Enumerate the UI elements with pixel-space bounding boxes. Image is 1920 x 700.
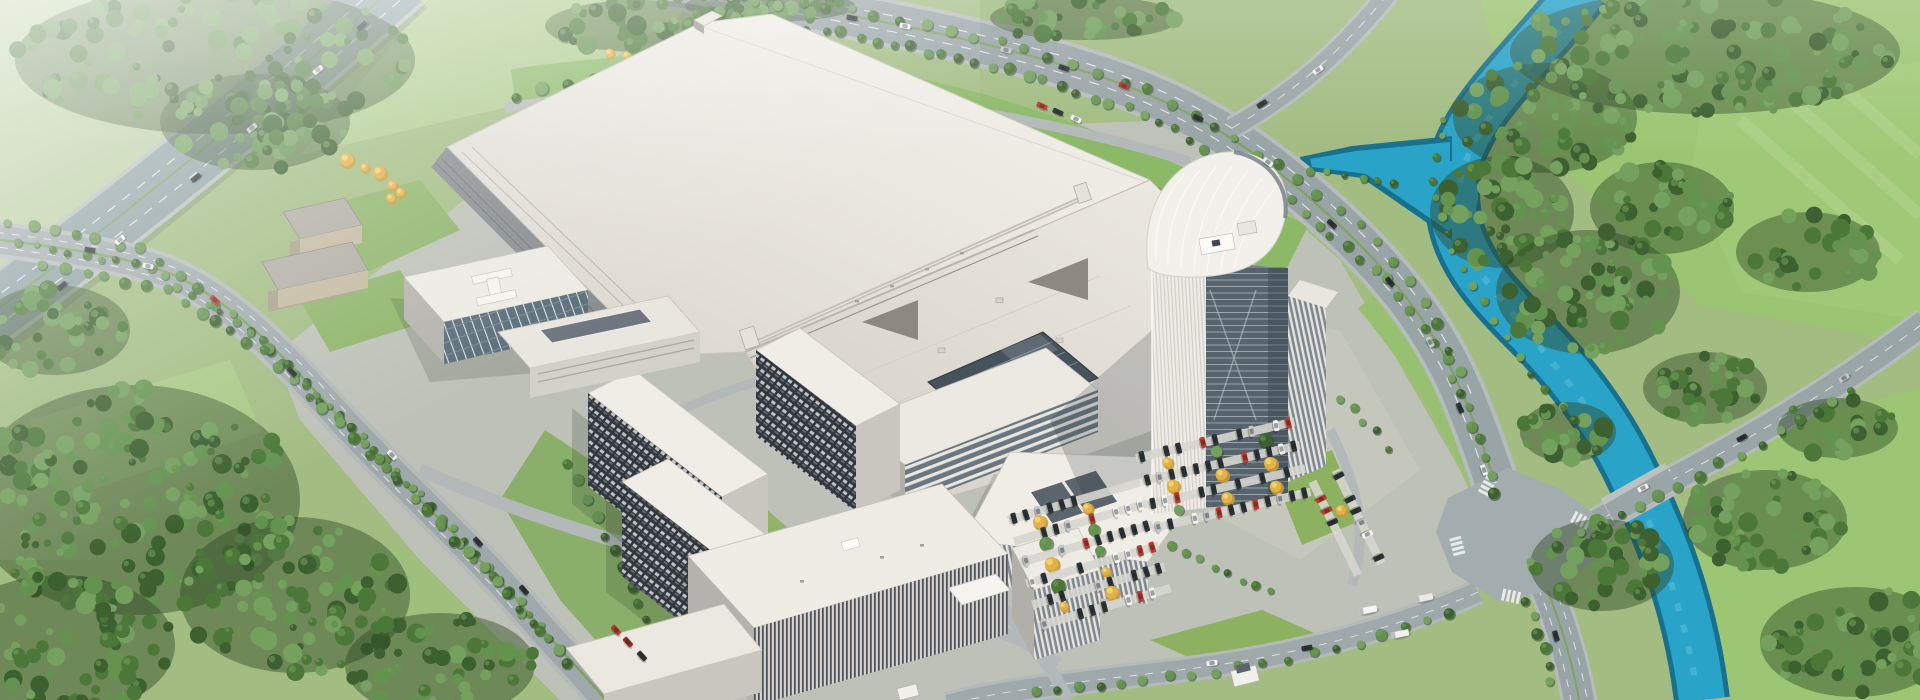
forest-tree [302, 654, 312, 664]
forest-tree [36, 640, 48, 652]
forest-tree [142, 614, 157, 629]
tree-highlight [1268, 588, 1271, 591]
tree-highlight [1288, 196, 1292, 200]
forest-tree [1832, 669, 1844, 681]
forest-tree [1878, 435, 1886, 443]
forest-tree [1604, 430, 1612, 438]
tree-highlight [1225, 570, 1228, 573]
tree-highlight [494, 578, 498, 582]
forest-tree-highlight [1632, 522, 1638, 528]
tree-highlight [1491, 318, 1494, 321]
tree [1490, 317, 1498, 325]
forest-tree [195, 566, 203, 574]
tree-highlight [563, 660, 567, 664]
forest-tree [1492, 185, 1500, 193]
forest-tree-highlight [509, 676, 514, 681]
forest-tree-highlight [269, 656, 275, 662]
forest-tree [425, 624, 435, 634]
forest-tree [435, 673, 445, 683]
tree-highlight [1542, 386, 1546, 390]
forest-tree [1567, 342, 1578, 353]
forest-tree [1853, 248, 1869, 264]
tree [1713, 457, 1723, 467]
tree-highlight [1391, 180, 1394, 183]
forest-tree-highlight [1444, 206, 1448, 210]
tree-highlight [1522, 598, 1526, 602]
car-roof [1209, 661, 1215, 666]
forest-tree [319, 582, 333, 596]
forest-tree [1709, 372, 1722, 385]
forest-tree-highlight [1600, 343, 1605, 348]
tree [480, 562, 490, 572]
forest-tree [1791, 676, 1800, 685]
tree-highlight [1053, 580, 1059, 586]
forest-tree [1760, 635, 1777, 652]
tree [1273, 158, 1283, 168]
yellow-tree-highlight [1337, 506, 1342, 511]
forest-tree [1873, 421, 1887, 435]
tree-highlight [1377, 630, 1382, 635]
forest-tree [1792, 282, 1801, 291]
forest-tree [147, 644, 159, 656]
tree-highlight [1075, 683, 1079, 687]
tree-highlight [1168, 542, 1172, 546]
forest-tree [1688, 493, 1707, 512]
forest-tree [1598, 223, 1616, 241]
tree-highlight [1358, 221, 1361, 224]
forest-tree-highlight [5, 650, 10, 655]
forest-tree [1615, 212, 1625, 222]
tree-highlight [1541, 643, 1546, 648]
tree [1355, 255, 1364, 264]
forest-tree [1591, 561, 1600, 570]
forest-tree [1588, 539, 1608, 559]
tree [1847, 387, 1854, 394]
tree [1448, 375, 1456, 383]
tree-highlight [1041, 538, 1047, 544]
forest-tree [1633, 587, 1646, 600]
forest-tree [1577, 440, 1592, 455]
forest-tree [1502, 283, 1519, 300]
forest-tree [1823, 489, 1832, 498]
tree-highlight [1337, 396, 1340, 399]
forest-tree [1709, 362, 1719, 372]
forest-tree [1902, 591, 1920, 609]
tree-highlight [1578, 529, 1581, 532]
tree-highlight [1814, 408, 1818, 412]
tree [1393, 292, 1402, 301]
forest-tree-highlight [226, 628, 229, 631]
tree-highlight [1571, 417, 1575, 421]
forest-tree [1678, 181, 1685, 188]
forest-tree [484, 660, 495, 671]
forest-tree [1654, 192, 1670, 208]
forest-tree [1609, 546, 1623, 560]
forest-tree [1597, 566, 1616, 585]
tree-highlight [1489, 472, 1493, 476]
forest-tree [358, 587, 377, 606]
forest-tree [1587, 589, 1597, 599]
forest-tree [1656, 287, 1668, 299]
tree [1444, 608, 1455, 619]
forest-tree [315, 658, 323, 666]
forest-tree-highlight [1543, 441, 1549, 447]
tree-highlight [1433, 195, 1436, 198]
tree [1182, 549, 1191, 558]
forest-tree [1784, 635, 1804, 655]
forest-tree [48, 572, 67, 591]
forest-tree [1740, 551, 1749, 560]
forest-tree [96, 602, 112, 618]
forest-tree [1588, 600, 1600, 612]
forest-tree [11, 568, 20, 577]
forest-tree [1523, 439, 1531, 447]
forest-tree [1644, 220, 1661, 237]
forest-tree-highlight [291, 625, 294, 628]
forest-tree [1847, 231, 1866, 250]
tree [1421, 324, 1430, 333]
forest-tree [1641, 296, 1650, 305]
forest-tree [1875, 409, 1888, 422]
forest-tree [1650, 319, 1666, 335]
tree-highlight [1374, 238, 1377, 241]
tree-highlight [1760, 442, 1763, 445]
tree-highlight [1358, 641, 1361, 644]
forest-tree [1672, 168, 1684, 180]
tree-highlight [1482, 454, 1485, 457]
tree [1336, 206, 1345, 215]
tree [1306, 167, 1314, 175]
tree [1343, 241, 1354, 252]
tree-highlight [1374, 427, 1377, 430]
tree [1445, 230, 1451, 236]
tree-highlight [1252, 582, 1256, 586]
forest-tree [480, 640, 488, 648]
forest-tree-highlight [1738, 386, 1742, 390]
forest-tree [1832, 240, 1843, 251]
forest-tree [1587, 344, 1595, 352]
forest-tree [1874, 630, 1892, 648]
tree [1469, 282, 1477, 290]
tree-highlight [1139, 677, 1143, 681]
forest-tree [415, 628, 426, 639]
tree [544, 634, 552, 642]
forest-tree [1871, 250, 1882, 261]
tree [1357, 640, 1365, 648]
forest-tree-highlight [1487, 228, 1491, 232]
forest-tree [1625, 303, 1633, 311]
forest-tree [303, 632, 316, 645]
tree [1097, 682, 1106, 691]
forest-tree [1859, 263, 1877, 281]
forest-tree [380, 607, 390, 617]
forest-tree [75, 595, 94, 614]
tree-highlight [1212, 670, 1216, 674]
tree [1618, 511, 1626, 519]
forest-tree-highlight [437, 675, 441, 679]
tree-highlight [1324, 169, 1327, 172]
forest-tree-highlight [1723, 413, 1728, 418]
forest-tree [1723, 198, 1733, 208]
forest-tree-highlight [1475, 212, 1480, 217]
forest-tree [1769, 253, 1777, 261]
forest-tree [1533, 268, 1543, 277]
forest-tree [1869, 592, 1889, 612]
forest-tree-highlight [123, 561, 128, 566]
forest-tree [1763, 272, 1774, 283]
forest-tree [1557, 285, 1573, 301]
forest-tree [1623, 196, 1631, 204]
forest-tree-highlight [1768, 503, 1774, 509]
forest-tree-highlight [117, 625, 123, 631]
forest-tree-highlight [1849, 619, 1856, 626]
forest-tree [1810, 653, 1828, 671]
forest-tree-highlight [1455, 240, 1461, 246]
tree-highlight [1481, 298, 1485, 302]
forest-tree [1596, 266, 1604, 274]
forest-tree [1576, 317, 1588, 329]
forest-tree-highlight [1593, 447, 1597, 451]
forest-tree [163, 622, 173, 632]
forest-tree [47, 647, 65, 665]
forest-tree [1682, 392, 1695, 405]
forest-tree [1582, 233, 1599, 250]
tree-highlight [1312, 191, 1316, 195]
forest-tree [1804, 443, 1822, 461]
forest-tree [1586, 292, 1594, 300]
forest-tree [1836, 607, 1845, 616]
forest-tree [286, 586, 297, 597]
tree [1031, 687, 1041, 697]
forest-tree [462, 657, 476, 671]
tree [1545, 677, 1554, 686]
forest-tree [1529, 211, 1537, 219]
forest-tree [1678, 206, 1697, 225]
forest-tree [1496, 232, 1504, 240]
tree [1373, 426, 1381, 434]
tree-highlight [1389, 258, 1393, 262]
forest-tree [1802, 546, 1812, 556]
tree [1577, 528, 1585, 536]
forest-tree [235, 580, 252, 597]
forest-tree-highlight [1781, 258, 1788, 265]
tree-highlight [1394, 293, 1398, 297]
yellow-tree-highlight [1035, 517, 1041, 523]
tree [1465, 403, 1473, 411]
forest-tree [1770, 479, 1781, 490]
forest-tree-highlight [338, 661, 341, 664]
tree-highlight [1848, 388, 1851, 391]
forest-tree-highlight [1673, 170, 1678, 175]
forest-tree [1725, 371, 1733, 379]
forest-tree [1550, 193, 1559, 202]
tree-highlight [1241, 579, 1244, 582]
tree-highlight [1386, 447, 1389, 450]
forest-tree [497, 641, 517, 661]
forest-tree [1526, 558, 1534, 566]
tree [1445, 347, 1453, 355]
forest-tree-highlight [1656, 161, 1661, 166]
forest-tree [331, 621, 338, 628]
forest-tree [1781, 208, 1796, 223]
forest-tree [360, 680, 372, 692]
forest-tree [1750, 393, 1760, 403]
forest-tree [1738, 358, 1754, 374]
tree-highlight [1445, 231, 1448, 234]
tree [1405, 276, 1415, 286]
forest-tree [177, 595, 194, 612]
forest-tree-highlight [1479, 181, 1485, 187]
tree-highlight [1598, 522, 1601, 525]
tree-highlight [1307, 168, 1311, 172]
yellow-tree-highlight [1266, 458, 1272, 464]
tree [1332, 645, 1340, 653]
tree-highlight [1254, 152, 1258, 156]
tree [1095, 546, 1105, 556]
forest-tree [1485, 226, 1495, 236]
forest-tree [1766, 501, 1782, 517]
forest-tree-highlight [1555, 584, 1563, 592]
tree-highlight [1213, 565, 1216, 568]
forest-tree [356, 670, 369, 683]
tree-highlight [1166, 671, 1170, 675]
tree [1385, 446, 1392, 453]
tree [1325, 232, 1332, 239]
forest-tree [122, 559, 136, 573]
yellow-tree-highlight [1107, 587, 1113, 593]
tree [1777, 426, 1786, 435]
tree-highlight [1344, 242, 1349, 247]
forest-tree [1887, 653, 1896, 662]
tree-highlight [1532, 613, 1535, 616]
forest-tree [1796, 628, 1804, 636]
forest-tree [1792, 532, 1800, 540]
tree-highlight [1796, 415, 1801, 420]
tree [1481, 453, 1489, 461]
forest-tree-highlight [1591, 533, 1595, 537]
forest-tree [1802, 481, 1814, 493]
tree-highlight [1337, 207, 1341, 211]
forest-tree [1630, 520, 1644, 534]
tree [1292, 174, 1302, 184]
forest-tree [1877, 659, 1887, 669]
forest-tree-highlight [288, 602, 292, 606]
tree-highlight [1188, 672, 1192, 676]
tree [1475, 434, 1485, 444]
tree [1504, 334, 1510, 340]
forest-tree [32, 572, 43, 583]
forest-tree [526, 660, 537, 671]
tree [1521, 597, 1530, 606]
tree [1531, 612, 1539, 620]
tree [1429, 177, 1437, 185]
forest-tree-highlight [217, 584, 222, 589]
tree-highlight [1326, 233, 1329, 236]
forest-tree-highlight [1635, 589, 1640, 594]
tree-highlight [1361, 176, 1364, 179]
forest-tree-highlight [1597, 298, 1604, 305]
forest-tree-highlight [1584, 235, 1591, 242]
forest-tree [1699, 351, 1710, 362]
tree-highlight [1175, 506, 1179, 510]
tree [1456, 389, 1465, 398]
tree-highlight [1778, 427, 1782, 431]
forest-tree [91, 685, 100, 694]
forest-tree [84, 576, 103, 595]
forest-tree [480, 670, 491, 681]
forest-tree [1809, 267, 1821, 279]
tree [1251, 581, 1260, 590]
forest-tree [1552, 528, 1563, 539]
forest-tree [1894, 659, 1911, 676]
forest-tree-highlight [1846, 270, 1850, 274]
tree [1652, 490, 1664, 502]
tree-highlight [1285, 658, 1288, 661]
tree [1635, 501, 1645, 511]
forest-tree-highlight [1507, 237, 1511, 241]
tree-highlight [1619, 512, 1622, 515]
forest-tree-highlight [1788, 472, 1792, 476]
forest-tree [1608, 295, 1626, 313]
forest-tree [1712, 552, 1726, 566]
forest-tree [1716, 539, 1731, 554]
tree [1336, 395, 1344, 403]
forest-tree [373, 667, 391, 685]
forest-tree [158, 657, 170, 669]
tree [1456, 366, 1466, 376]
forest-tree-highlight [1875, 423, 1881, 429]
forest-tree-highlight [424, 649, 431, 656]
tree [1360, 175, 1368, 183]
forest-tree [337, 660, 345, 668]
forest-tree [1803, 512, 1814, 523]
forest-tree-highlight [117, 588, 124, 595]
forest-tree-highlight [1693, 487, 1700, 494]
forest-tree-highlight [1742, 470, 1746, 474]
forest-tree-highlight [1568, 429, 1574, 435]
tree [1737, 452, 1745, 460]
tree [1359, 419, 1366, 426]
forest-tree [1738, 512, 1758, 532]
forest-tree [1497, 243, 1508, 254]
tree-highlight [1406, 307, 1410, 311]
forest-tree-highlight [1528, 415, 1533, 420]
forest-tree-highlight [1609, 260, 1612, 263]
forest-tree-highlight [12, 570, 16, 574]
forest-tree-highlight [1637, 243, 1643, 249]
forest-tree [1454, 169, 1463, 178]
tree-highlight [516, 607, 519, 610]
forest-tree [1806, 613, 1824, 631]
yellow-tree-highlight [1047, 559, 1053, 565]
tree-highlight [1449, 376, 1452, 379]
forest-tree [1690, 383, 1697, 390]
tree [1421, 297, 1431, 307]
forest-tree [1689, 525, 1707, 543]
tree [1212, 565, 1219, 572]
forest-tree [1907, 615, 1915, 623]
tree [1673, 482, 1683, 492]
tree [1405, 306, 1414, 315]
forest-tree-highlight [123, 658, 130, 665]
forest-tree [1819, 513, 1836, 530]
forest-tree [94, 659, 108, 673]
forest-tree-highlight [1804, 483, 1809, 488]
tree [1039, 537, 1052, 550]
forest-tree [1730, 359, 1739, 368]
tree [1341, 173, 1347, 179]
forest-tree [1620, 276, 1628, 284]
